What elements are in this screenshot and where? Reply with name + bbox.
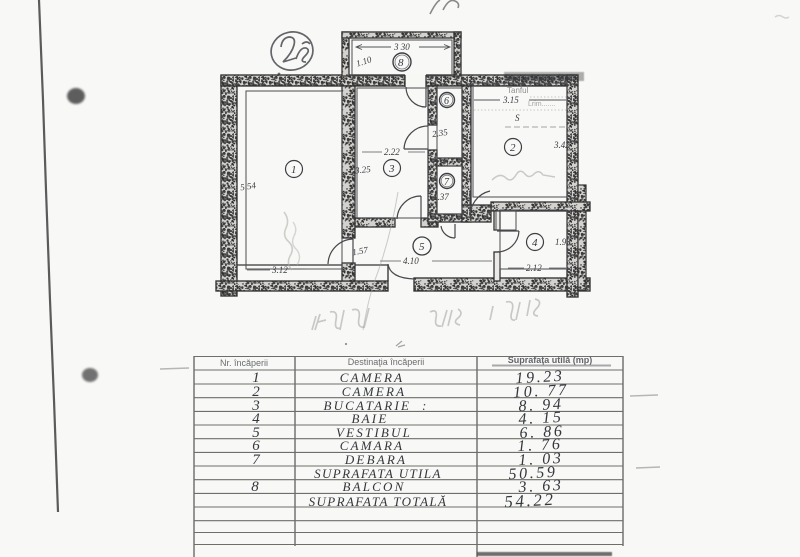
svg-text:3: 3 [388,163,395,175]
svg-text:2.12: 2.12 [526,263,542,273]
svg-text:Securitatea BtC: Securitatea BtC [504,73,575,84]
svg-text:3.25: 3.25 [354,164,372,176]
svg-text:1: 1 [291,164,297,176]
svg-text:3.42: 3.42 [553,140,570,150]
svg-text:3 30: 3 30 [393,42,410,52]
svg-text:54.22: 54.22 [504,490,556,512]
svg-text:CAMERA: CAMERA [340,370,404,385]
svg-text:6: 6 [444,96,449,107]
svg-text:8: 8 [398,57,404,69]
svg-text:Nr. încăperii: Nr. încăperii [220,358,268,368]
svg-text:DEBARA: DEBARA [344,452,407,467]
svg-text:0.75: 0.75 [437,213,453,223]
svg-text:CAMERA: CAMERA [342,384,406,399]
svg-text:BALCON: BALCON [342,479,405,494]
svg-text:4.10: 4.10 [403,256,419,266]
svg-text:1.95: 1.95 [555,237,571,247]
svg-text:0.95: 0.95 [433,158,449,168]
svg-text:Lrim.......: Lrim....... [528,101,555,108]
svg-text:Destinaţia încăperii: Destinaţia încăperii [348,357,425,367]
svg-text:CAMARA: CAMARA [340,438,404,453]
svg-text:8: 8 [251,479,259,495]
svg-text:Suprafaţa utilă (mp): Suprafaţa utilă (mp) [508,355,593,365]
svg-text:Tanful: Tanful [507,86,529,95]
svg-text:2.22: 2.22 [384,147,400,157]
svg-text:2: 2 [510,142,516,154]
svg-text:4: 4 [532,237,538,249]
svg-text:BAIE: BAIE [352,411,389,426]
svg-text:S: S [515,113,520,123]
svg-text:3.12: 3.12 [271,265,288,275]
svg-text:5: 5 [419,241,425,253]
svg-text:1.37: 1.37 [433,192,449,202]
svg-text:3.15: 3.15 [502,95,519,105]
svg-text:SUPRAFATA TOTALĂ: SUPRAFATA TOTALĂ [309,494,448,509]
